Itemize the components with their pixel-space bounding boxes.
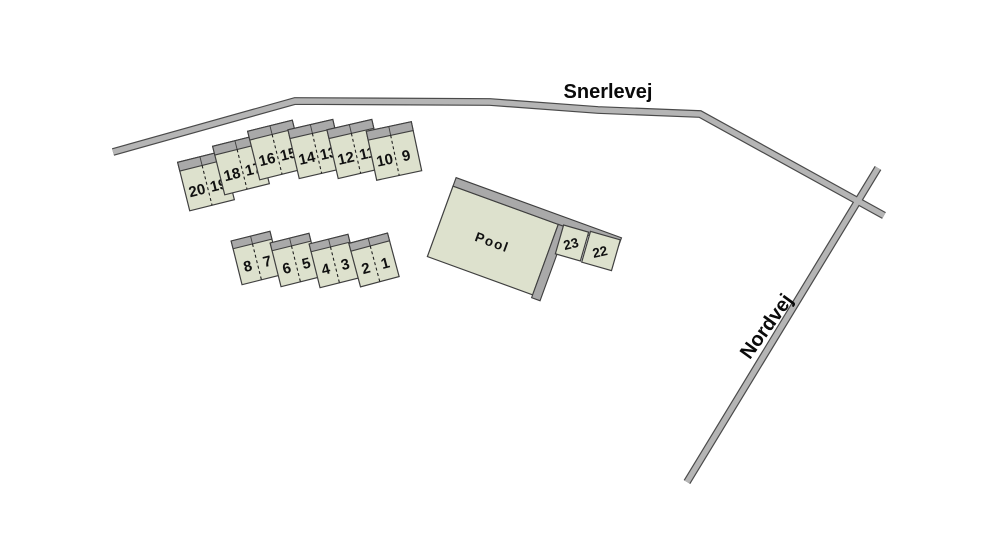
house-10-label: 10 (375, 151, 395, 171)
house-22-label: 22 (591, 243, 609, 261)
house-pair-10-9: 10 9 (366, 122, 421, 180)
road-nordvej-surface (687, 168, 878, 482)
site-map: 20 19 18 17 16 15 14 13 12 11 (0, 0, 1000, 552)
svg-text:22: 22 (591, 243, 609, 261)
house-pair-6-5: 6 5 (270, 233, 320, 286)
road-snerlevej-label: Snerlevej (564, 81, 653, 103)
